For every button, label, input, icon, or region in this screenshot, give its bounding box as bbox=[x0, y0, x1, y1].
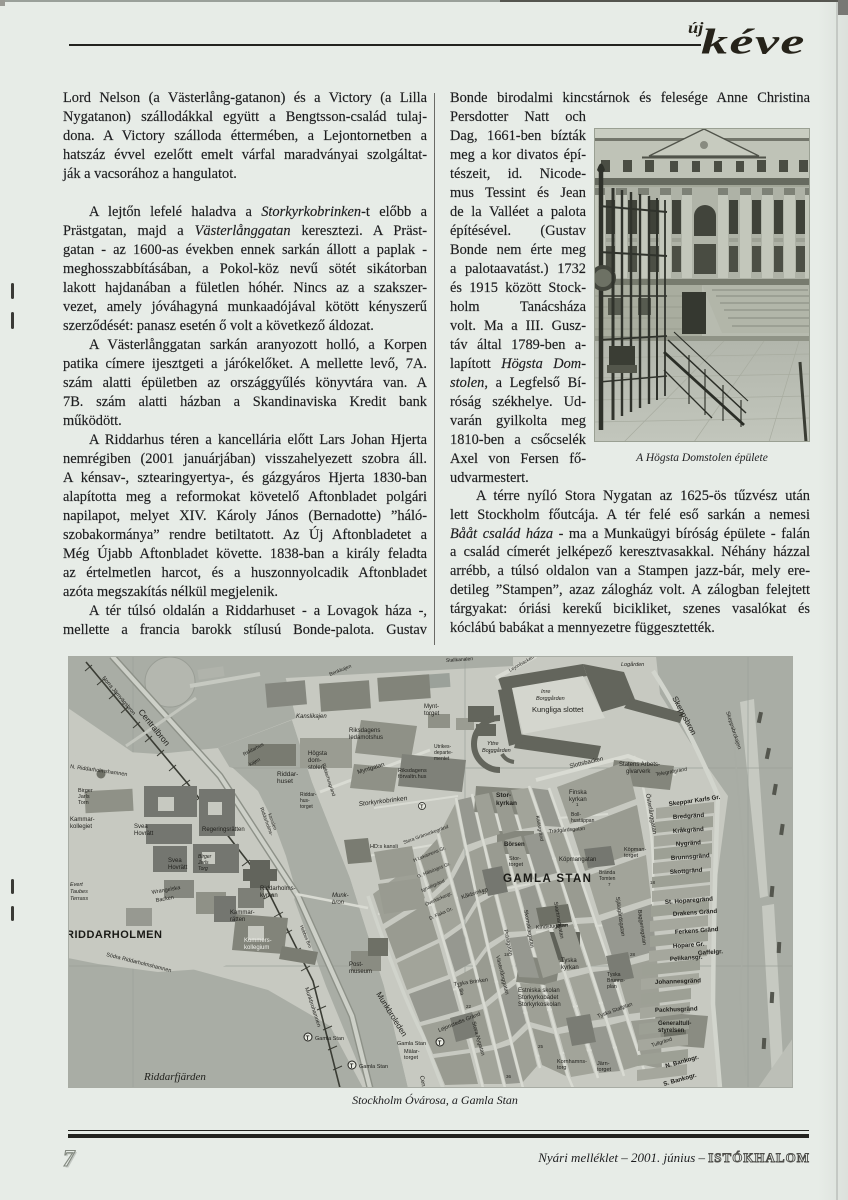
svg-text:T: T bbox=[350, 1064, 354, 1070]
svg-text:Borggården: Borggården bbox=[482, 747, 511, 754]
svg-text:Finska: Finska bbox=[569, 790, 587, 796]
svg-text:Kanslikajen: Kanslikajen bbox=[296, 714, 327, 720]
svg-text:Riddarfjärden: Riddarfjärden bbox=[143, 1071, 206, 1083]
svg-text:Inre: Inre bbox=[541, 689, 550, 695]
svg-text:Kammar-: Kammar- bbox=[70, 817, 95, 823]
svg-text:ledamotshus: ledamotshus bbox=[349, 735, 383, 741]
svg-text:torget: torget bbox=[509, 862, 524, 868]
svg-text:Kammar-: Kammar- bbox=[230, 910, 255, 916]
svg-text:T: T bbox=[420, 804, 423, 810]
svg-text:torget: torget bbox=[300, 804, 313, 810]
svg-text:styrelsen: styrelsen bbox=[658, 1028, 685, 1034]
svg-text:rätten: rätten bbox=[230, 917, 245, 923]
svg-text:torget: torget bbox=[404, 1055, 419, 1061]
svg-text:28: 28 bbox=[630, 952, 636, 957]
svg-text:Stor-: Stor- bbox=[496, 792, 511, 799]
svg-text:T: T bbox=[438, 1041, 442, 1047]
svg-text:22: 22 bbox=[466, 1004, 472, 1009]
svg-text:Svea: Svea bbox=[168, 858, 182, 864]
svg-text:Evert: Evert bbox=[70, 882, 83, 888]
svg-text:RIDDARHOLMEN: RIDDARHOLMEN bbox=[68, 929, 162, 941]
svg-text:givarverk: givarverk bbox=[626, 769, 651, 775]
svg-text:mentet: mentet bbox=[434, 756, 450, 762]
svg-text:Riddar-: Riddar- bbox=[277, 771, 298, 778]
svg-text:kyrkan: kyrkan bbox=[260, 893, 278, 899]
svg-text:Köpmangatan: Köpmangatan bbox=[559, 857, 596, 863]
svg-text:Mynt-: Mynt- bbox=[424, 704, 439, 710]
svg-text:hustäppan: hustäppan bbox=[571, 818, 595, 824]
svg-text:kyrkan: kyrkan bbox=[569, 797, 587, 803]
svg-text:Gamla Stan: Gamla Stan bbox=[397, 1041, 426, 1047]
svg-text:Storkyrkobadet: Storkyrkobadet bbox=[518, 995, 559, 1001]
svg-text:Regeringsrätten: Regeringsrätten bbox=[202, 827, 245, 833]
svg-text:dom-: dom- bbox=[308, 758, 322, 764]
svg-text:18: 18 bbox=[650, 880, 656, 885]
svg-text:Packhusgränd: Packhusgränd bbox=[655, 1006, 698, 1014]
svg-text:Logården: Logården bbox=[621, 661, 644, 668]
svg-text:Statens Arbets-: Statens Arbets- bbox=[619, 762, 660, 768]
svg-text:plan: plan bbox=[607, 984, 617, 990]
svg-text:torget: torget bbox=[424, 711, 440, 717]
svg-text:Börsen: Börsen bbox=[504, 842, 525, 848]
svg-text:kyrkan: kyrkan bbox=[496, 800, 517, 807]
svg-text:25: 25 bbox=[538, 1044, 544, 1049]
svg-text:kollegiet: kollegiet bbox=[70, 824, 92, 830]
svg-text:Torn: Torn bbox=[78, 800, 89, 806]
svg-text:Yttre: Yttre bbox=[487, 741, 499, 747]
svg-text:Hovrätt: Hovrätt bbox=[134, 831, 154, 837]
svg-text:Svea: Svea bbox=[134, 824, 148, 830]
svg-text:förvaltn.hus: förvaltn.hus bbox=[398, 774, 427, 780]
svg-text:36: 36 bbox=[506, 1074, 512, 1079]
svg-text:Högsta: Högsta bbox=[308, 751, 328, 757]
svg-text:HD:s kansli: HD:s kansli bbox=[370, 844, 398, 850]
svg-text:Generaltull-: Generaltull- bbox=[658, 1021, 691, 1027]
svg-text:Post-: Post- bbox=[349, 962, 363, 968]
svg-text:Riddarholms-: Riddarholms- bbox=[260, 886, 296, 892]
svg-text:Gamla Stan: Gamla Stan bbox=[315, 1036, 344, 1042]
svg-text:T: T bbox=[306, 1036, 310, 1042]
svg-text:Kungliga slottet: Kungliga slottet bbox=[532, 705, 584, 714]
svg-text:Torg: Torg bbox=[198, 866, 208, 872]
svg-text:torg: torg bbox=[557, 1065, 566, 1071]
svg-text:GAMLA STAN: GAMLA STAN bbox=[503, 873, 592, 885]
svg-text:kyrkan: kyrkan bbox=[561, 965, 579, 971]
svg-text:Taubes: Taubes bbox=[70, 889, 88, 895]
svg-text:Tyska: Tyska bbox=[561, 958, 577, 964]
svg-text:Estniska skolan: Estniska skolan bbox=[518, 988, 560, 994]
svg-text:Munk-: Munk- bbox=[332, 893, 349, 899]
svg-text:torget: torget bbox=[624, 853, 639, 859]
svg-text:kollegium: kollegium bbox=[244, 945, 269, 951]
svg-text:Tomten: Tomten bbox=[599, 876, 616, 882]
svg-text:huset: huset bbox=[277, 778, 293, 785]
svg-text:Hovrätt: Hovrätt bbox=[168, 865, 188, 871]
svg-text:Riksdagens: Riksdagens bbox=[349, 728, 380, 734]
svg-text:Gamla Stan: Gamla Stan bbox=[359, 1064, 388, 1070]
svg-text:Kommers-: Kommers- bbox=[244, 938, 272, 944]
svg-text:kéve: kéve bbox=[701, 21, 806, 61]
svg-text:Storkyrkoskolan: Storkyrkoskolan bbox=[518, 1002, 561, 1008]
svg-text:torget: torget bbox=[597, 1067, 612, 1073]
svg-text:Borggården: Borggården bbox=[536, 695, 565, 702]
svg-text:Terrass: Terrass bbox=[70, 896, 88, 902]
svg-text:bron: bron bbox=[332, 900, 345, 906]
svg-text:museum: museum bbox=[349, 969, 372, 975]
